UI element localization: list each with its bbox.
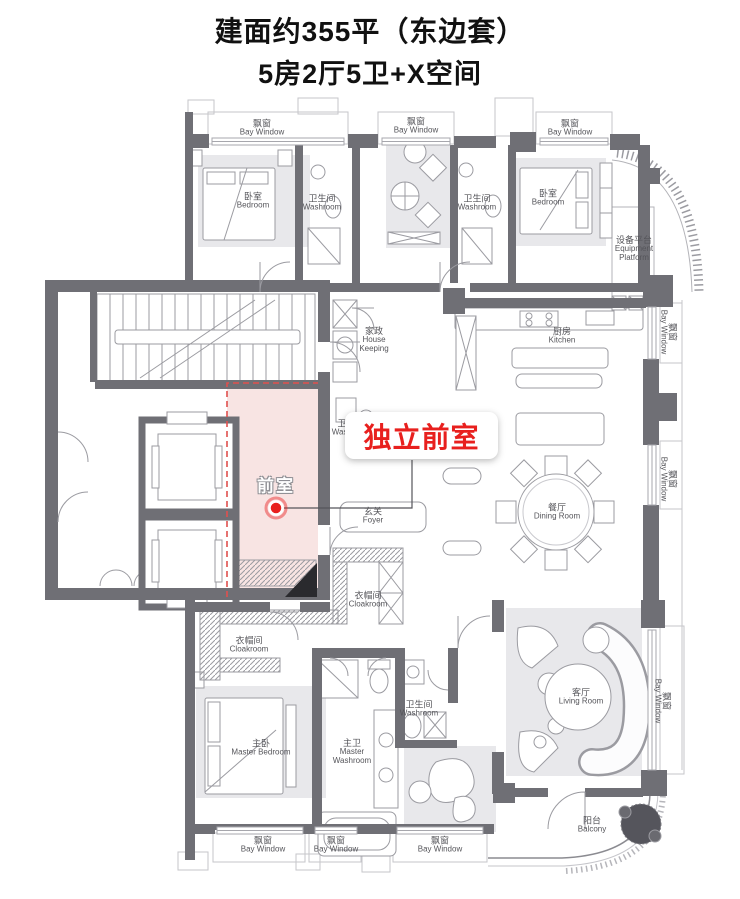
highlight-room-label: 前室: [257, 472, 295, 497]
elevator-icon: [142, 412, 236, 512]
dining-table-icon: [496, 456, 614, 570]
floorplan-page: 建面约355平（东边套） 5房2厅5卫+X空间: [0, 0, 740, 899]
console-icon: [443, 468, 481, 484]
annotation-callout: 独立前室: [345, 412, 498, 459]
console-icon: [443, 541, 481, 555]
laundry-icon: [333, 300, 374, 430]
plant-icon: [619, 804, 661, 844]
red-dot-marker: [270, 502, 283, 515]
washroom-fixtures-icon: [402, 660, 446, 738]
washroom-fixtures-icon: [459, 163, 501, 264]
stairs-icon: [97, 294, 315, 382]
washroom-fixtures-icon: [308, 165, 341, 264]
